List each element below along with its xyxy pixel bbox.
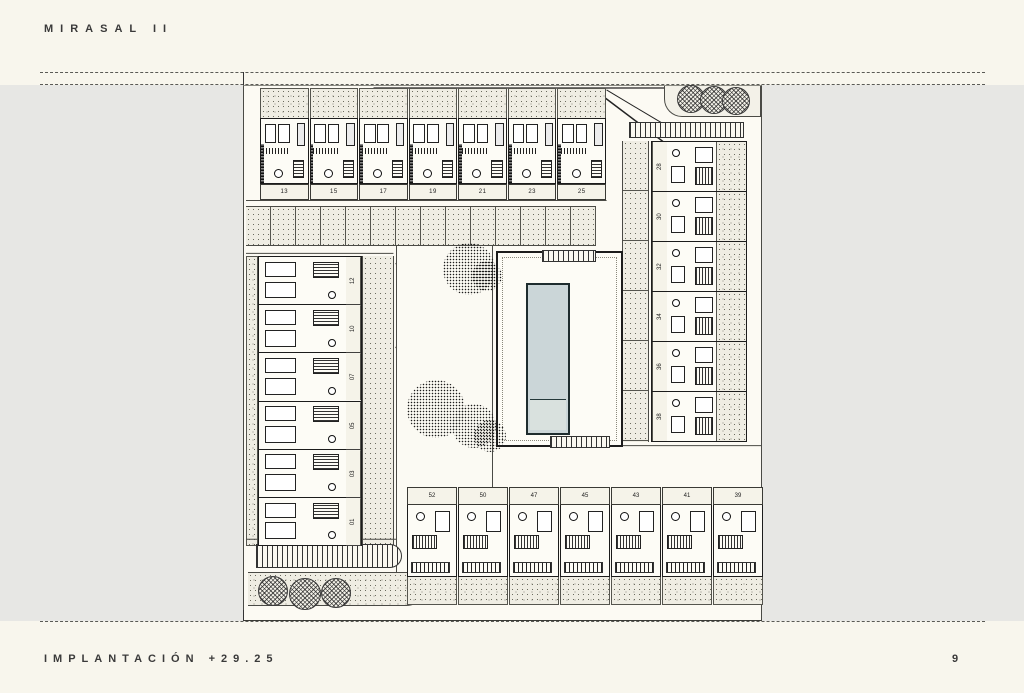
unit-floorplan — [509, 505, 559, 577]
unit-cell: 34 — [652, 292, 746, 342]
unit-floorplan — [259, 402, 346, 449]
unit-cell: 38 — [652, 392, 746, 441]
pergola-top-right — [629, 122, 744, 138]
garden-strip-left-outer — [246, 256, 258, 546]
unit-number: 41 — [662, 487, 712, 505]
pergola-bottom-left — [256, 544, 402, 568]
unit-floorplan — [259, 353, 346, 400]
pool-shallow-end — [530, 399, 566, 430]
unit-front-garden — [557, 88, 606, 118]
unit-cell: 17 — [359, 88, 408, 200]
unit-front-garden — [716, 192, 746, 241]
plan-boundary-tick-bottom — [243, 610, 244, 621]
unit-row-top: 13 15 17 — [260, 88, 607, 200]
unit-floorplan — [359, 118, 408, 184]
tree-icon — [258, 576, 288, 606]
unit-number: 52 — [407, 487, 457, 505]
unit-cell: 50 — [458, 487, 508, 605]
unit-floorplan — [667, 292, 716, 341]
unit-cell: 10 — [259, 305, 361, 353]
swimming-pool — [526, 283, 570, 435]
unit-floorplan — [557, 118, 606, 184]
footer-label: IMPLANTACIÓN +29.25 — [44, 653, 279, 665]
unit-number: 32 — [652, 242, 667, 291]
tree-icon — [472, 261, 502, 291]
unit-number: 21 — [458, 184, 507, 200]
unit-floorplan — [458, 118, 507, 184]
unit-number: 25 — [557, 184, 606, 200]
unit-number: 36 — [652, 342, 667, 391]
unit-cell: 28 — [652, 142, 746, 192]
unit-cell: 07 — [259, 353, 361, 401]
pool-deck-steps-bottom — [550, 436, 610, 448]
unit-cell: 05 — [259, 402, 361, 450]
unit-cell: 23 — [508, 88, 557, 200]
unit-number: 50 — [458, 487, 508, 505]
unit-front-garden — [409, 88, 458, 118]
page-number: 9 — [952, 653, 958, 665]
unit-cell: 19 — [409, 88, 458, 200]
unit-number: 38 — [652, 392, 667, 441]
site-plan: 13 15 17 — [243, 85, 762, 621]
unit-number: 28 — [652, 142, 667, 191]
surround-area-left — [0, 85, 243, 621]
unit-cell: 41 — [662, 487, 712, 605]
surround-area-right — [762, 85, 1024, 621]
unit-front-garden — [716, 142, 746, 191]
unit-number: 07 — [346, 353, 361, 400]
unit-cell: 43 — [611, 487, 661, 605]
unit-floorplan — [260, 118, 309, 184]
tree-icon — [289, 578, 321, 610]
unit-rear-garden — [407, 577, 457, 605]
unit-cell: 36 — [652, 342, 746, 392]
unit-number: 05 — [346, 402, 361, 449]
unit-front-garden — [716, 392, 746, 441]
unit-row-bottom: 52 50 47 — [406, 487, 763, 605]
unit-rear-garden — [662, 577, 712, 605]
unit-number: 30 — [652, 192, 667, 241]
unit-cell: 12 — [259, 257, 361, 305]
unit-front-garden — [260, 88, 309, 118]
unit-floorplan — [508, 118, 557, 184]
unit-floorplan — [667, 242, 716, 291]
unit-floorplan — [667, 342, 716, 391]
unit-floorplan — [310, 118, 359, 184]
top-rule-dashed-1 — [40, 72, 985, 73]
unit-cell: 01 — [259, 498, 361, 545]
unit-number: 39 — [713, 487, 763, 505]
unit-floorplan — [259, 257, 346, 304]
unit-floorplan — [259, 305, 346, 352]
unit-number: 47 — [509, 487, 559, 505]
unit-floorplan — [407, 505, 457, 577]
unit-number: 43 — [611, 487, 661, 505]
unit-number: 10 — [346, 305, 361, 352]
tree-icon — [722, 87, 750, 115]
unit-front-garden — [508, 88, 557, 118]
pool-deck — [496, 251, 623, 447]
parking-strip-top — [246, 206, 596, 246]
unit-row-left: 12 10 07 05 — [258, 256, 362, 546]
unit-floorplan — [611, 505, 661, 577]
unit-number: 01 — [346, 498, 361, 545]
unit-front-garden — [716, 242, 746, 291]
unit-number: 15 — [310, 184, 359, 200]
unit-number: 12 — [346, 257, 361, 304]
unit-cell: 03 — [259, 450, 361, 498]
unit-floorplan — [667, 392, 716, 441]
pool-deck-steps-top — [542, 250, 596, 262]
unit-cell: 25 — [557, 88, 606, 200]
page: { "header": { "title": "MIRASAL II" }, "… — [0, 0, 1024, 693]
unit-cell: 52 — [407, 487, 457, 605]
unit-rear-garden — [611, 577, 661, 605]
unit-number: 45 — [560, 487, 610, 505]
unit-front-garden — [310, 88, 359, 118]
unit-floorplan — [662, 505, 712, 577]
unit-front-garden — [359, 88, 408, 118]
unit-cell: 30 — [652, 192, 746, 242]
unit-number: 23 — [508, 184, 557, 200]
plan-boundary-tick-top — [243, 72, 244, 85]
unit-cell: 13 — [260, 88, 309, 200]
bottom-rule-dashed — [40, 621, 985, 622]
unit-cell: 39 — [713, 487, 763, 605]
unit-rear-garden — [560, 577, 610, 605]
unit-floorplan — [560, 505, 610, 577]
unit-cell: 45 — [560, 487, 610, 605]
unit-rear-garden — [458, 577, 508, 605]
unit-cell: 15 — [310, 88, 359, 200]
garden-strip-left-inner — [362, 256, 394, 546]
unit-number: 03 — [346, 450, 361, 497]
unit-front-garden — [458, 88, 507, 118]
unit-cell: 21 — [458, 88, 507, 200]
unit-cell: 32 — [652, 242, 746, 292]
page-title: MIRASAL II — [44, 23, 173, 35]
unit-front-garden — [716, 342, 746, 391]
unit-floorplan — [458, 505, 508, 577]
unit-number: 19 — [409, 184, 458, 200]
unit-row-right: 28 30 32 — [651, 141, 747, 442]
unit-number: 17 — [359, 184, 408, 200]
unit-floorplan — [259, 450, 346, 497]
garden-strip-right-column — [622, 141, 649, 442]
unit-floorplan — [667, 142, 716, 191]
unit-floorplan — [713, 505, 763, 577]
unit-cell: 47 — [509, 487, 559, 605]
unit-front-garden — [716, 292, 746, 341]
unit-number: 34 — [652, 292, 667, 341]
unit-floorplan — [259, 498, 346, 545]
unit-floorplan — [409, 118, 458, 184]
unit-floorplan — [667, 192, 716, 241]
unit-rear-garden — [509, 577, 559, 605]
unit-rear-garden — [713, 577, 763, 605]
unit-number: 13 — [260, 184, 309, 200]
tree-icon — [474, 420, 506, 452]
tree-icon — [321, 578, 351, 608]
